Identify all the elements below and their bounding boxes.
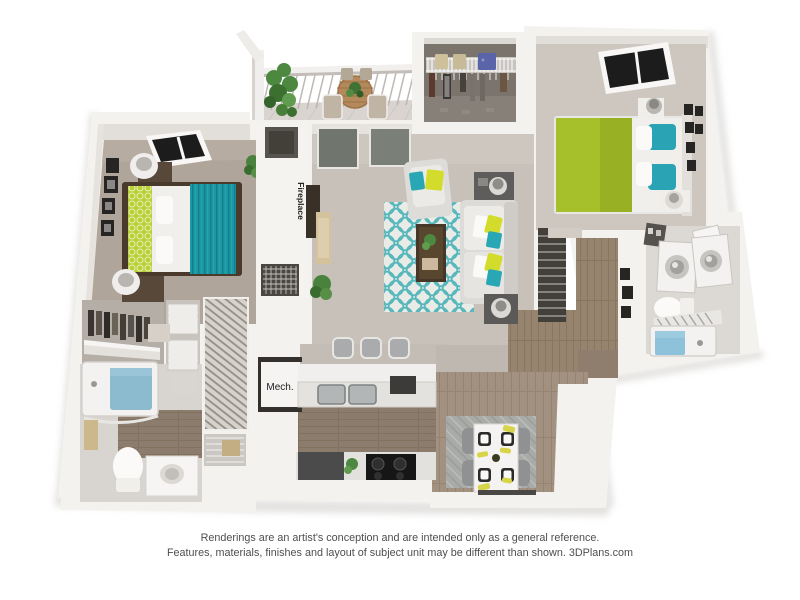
svg-text:Features, materials, finishes: Features, materials, finishes and layout… — [167, 547, 633, 559]
svg-text:Fireplace: Fireplace — [296, 182, 306, 220]
svg-text:Renderings are an artist's con: Renderings are an artist's conception an… — [201, 532, 600, 544]
svg-text:Mech.: Mech. — [266, 382, 293, 393]
